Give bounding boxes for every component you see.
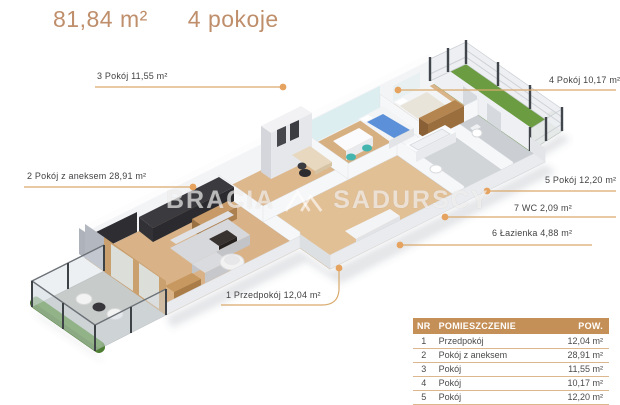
row-area: 11,55 m² [548,362,609,376]
sink [430,165,442,173]
col-header-pow: POW. [548,318,609,334]
total-area: 81,84 m² [53,6,148,33]
label-room3: 3 Pokój 11,55 m² [97,71,168,81]
balcony-table [93,303,106,312]
table-header-row: NR POMIESZCZENIE POW. [413,318,609,334]
brand-watermark: BRACIA SADURSCY [166,186,490,215]
row-nr: 4 [413,376,435,390]
room-count: 4 pokoje [188,6,279,33]
twin-peaks-logo-icon [284,188,324,214]
col-header-name: POMIESZCZENIE [435,318,549,334]
balcony-chair [76,294,92,305]
row-area: 10,17 m² [548,376,609,390]
row-name: Pokój [435,390,549,404]
label-room4: 4 Pokój 10,17 m² [549,75,620,85]
kids-chair [362,145,372,152]
row-nr: 2 [413,348,435,362]
label-living: 2 Pokój z aneksem 28,91 m² [27,171,146,181]
desk-chair [299,169,311,177]
label-room5: 5 Pokój 12,20 m² [545,175,616,185]
row-nr: 5 [413,390,435,404]
toilet [472,129,482,137]
label-bathroom: 6 Łazienka 4,88 m² [492,228,572,238]
brand-word-left: BRACIA [166,186,275,215]
row-name: Pokój z aneksem [435,348,549,362]
row-nr: 3 [413,362,435,376]
label-hallway: 1 Przedpokój 12,04 m² [226,290,321,300]
row-area: 12,04 m² [548,334,609,348]
kids-chair [346,154,356,161]
label-wc: 7 WC 2,09 m² [514,203,572,213]
table-row: 5 Pokój 12,20 m² [413,390,609,404]
row-name: Pokój [435,362,549,376]
brand-word-right: SADURSCY [333,186,489,215]
table-row: 1 Przedpokój 12,04 m² [413,334,609,348]
row-area: 12,20 m² [548,390,609,404]
page-title: 81,84 m² 4 pokoje [53,6,279,33]
table-row: 2 Pokój z aneksem 28,91 m² [413,348,609,362]
room-area-table: NR POMIESZCZENIE POW. 1 Przedpokój 12,04… [413,318,609,405]
row-area: 28,91 m² [548,348,609,362]
table-row: 4 Pokój 10,17 m² [413,376,609,390]
floorplan-page: 81,84 m² 4 pokoje 3 Pokój 11,55 m² 4 Pok… [0,0,620,400]
col-header-nr: NR [413,318,435,334]
table-row: 3 Pokój 11,55 m² [413,362,609,376]
row-name: Pokój [435,376,549,390]
row-nr: 1 [413,334,435,348]
row-name: Przedpokój [435,334,549,348]
